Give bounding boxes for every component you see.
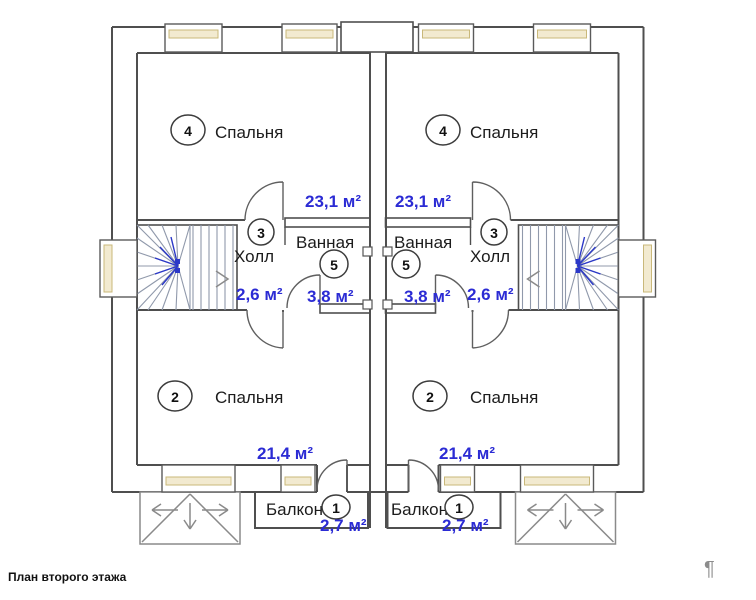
area-label-bedroom-bottom-left: 21,4 м² [257,444,313,463]
plumbing-riser-icon [363,247,392,309]
unit-left-geometry [100,24,378,544]
area-label-balcony-right: 2,7 м² [442,516,489,535]
room-number: 1 [455,500,463,516]
room-label-bathroom-right: Ванная [394,233,452,252]
room-number: 1 [332,500,340,516]
area-label-balcony-left: 2,7 м² [320,516,367,535]
room-number: 4 [184,123,192,139]
floor-plan: 4 Спальня 23,1 м² 3 Холл 2,6 м² Ванная 5… [0,0,756,600]
room-label-balcony-left: Балкон [266,500,323,519]
room-label-bedroom-bottom-left: Спальня [215,388,283,407]
caption: План второго этажа [8,570,126,584]
floor-plan-page: 4 Спальня 23,1 м² 3 Холл 2,6 м² Ванная 5… [0,0,756,600]
area-label-bedroom-top-right: 23,1 м² [395,192,451,211]
area-label-bathroom-right: 3,8 м² [404,287,451,306]
room-label-hall-right: Холл [470,247,510,266]
party-wall-pier [341,22,413,52]
room-label-bathroom-left: Ванная [296,233,354,252]
unit-right-geometry [378,24,656,544]
room-number: 3 [490,225,498,241]
room-number: 2 [171,389,179,405]
pilcrow-icon: ¶ [704,558,715,581]
room-number: 2 [426,389,434,405]
room-number: 5 [330,257,338,273]
room-label-hall-left: Холл [234,247,274,266]
room-label-bedroom-top-left: Спальня [215,123,283,142]
party-wall [370,52,386,528]
room-number: 5 [402,257,410,273]
area-label-bedroom-top-left: 23,1 м² [305,192,361,211]
room-label-balcony-right: Балкон [391,500,448,519]
room-label-bedroom-top-right: Спальня [470,123,538,142]
room-number: 3 [257,225,265,241]
room-number: 4 [439,123,447,139]
area-label-hall-right: 2,6 м² [467,285,514,304]
area-label-bathroom-left: 3,8 м² [307,287,354,306]
area-label-hall-left: 2,6 м² [236,285,283,304]
area-label-bedroom-bottom-right: 21,4 м² [439,444,495,463]
room-label-bedroom-bottom-right: Спальня [470,388,538,407]
